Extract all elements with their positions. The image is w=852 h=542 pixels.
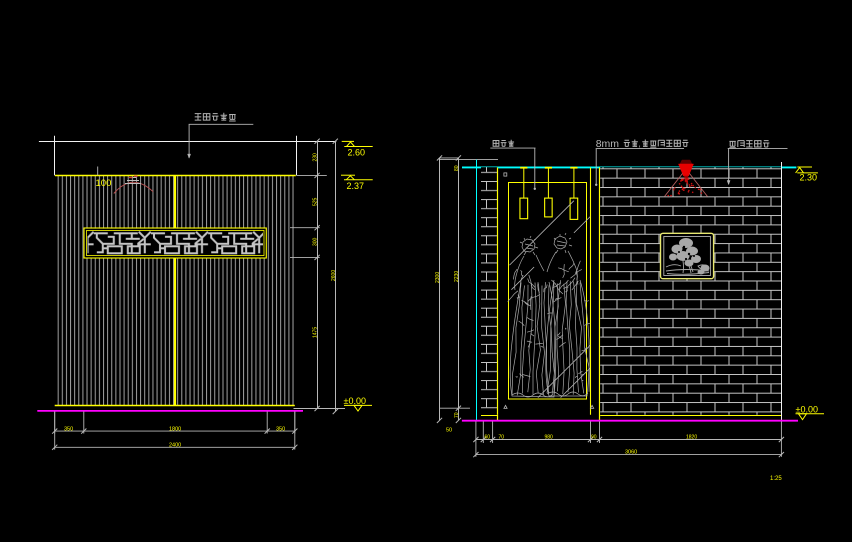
svg-text:525: 525: [313, 197, 319, 206]
svg-text:70: 70: [499, 434, 505, 440]
svg-text:1475: 1475: [313, 327, 319, 338]
svg-text:2230: 2230: [454, 271, 460, 282]
svg-text:50: 50: [446, 428, 452, 434]
svg-text:230: 230: [313, 153, 319, 162]
svg-text:100: 100: [96, 178, 112, 189]
svg-text:2.37: 2.37: [347, 181, 365, 191]
svg-text:980: 980: [545, 434, 554, 440]
svg-text:60: 60: [485, 434, 491, 440]
svg-text:2.30: 2.30: [800, 173, 818, 183]
svg-text:1:25: 1:25: [770, 476, 782, 482]
svg-text:2.60: 2.60: [348, 148, 366, 158]
svg-text:350: 350: [64, 426, 73, 432]
svg-text:3060: 3060: [625, 449, 637, 455]
svg-text:2400: 2400: [169, 443, 181, 449]
svg-text:90: 90: [591, 434, 597, 440]
svg-text:300: 300: [313, 237, 319, 246]
svg-text:8mm: 8mm: [596, 138, 620, 150]
svg-text:±0.00: ±0.00: [796, 405, 818, 415]
svg-text:±0.00: ±0.00: [344, 396, 366, 406]
svg-text:,: ,: [639, 140, 641, 149]
svg-text:2600: 2600: [331, 270, 337, 281]
svg-text:1800: 1800: [169, 426, 181, 432]
svg-text:70: 70: [454, 412, 460, 418]
svg-text:80: 80: [454, 165, 460, 171]
svg-text:350: 350: [276, 426, 285, 432]
svg-text:2300: 2300: [435, 272, 441, 283]
svg-text:1820: 1820: [686, 434, 697, 440]
